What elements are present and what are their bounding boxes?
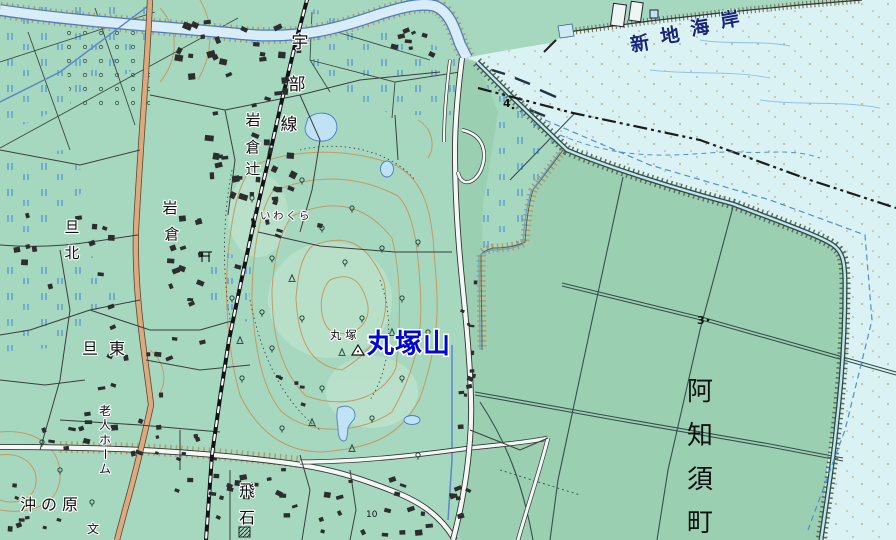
- building: [63, 446, 69, 450]
- building: [221, 156, 228, 160]
- label-ajisu-cho-1: 阿: [687, 377, 713, 407]
- building: [179, 215, 186, 221]
- building: [264, 139, 270, 145]
- building: [12, 483, 17, 487]
- building: [470, 369, 475, 373]
- label-ube-line-1: 宇: [292, 33, 309, 53]
- building: [399, 530, 405, 535]
- label-shinchi-kaigan-3: 海: [689, 15, 712, 41]
- building: [464, 393, 467, 396]
- building: [278, 51, 286, 58]
- label-ajisu-cho-2: 知: [687, 421, 713, 451]
- building: [421, 511, 426, 516]
- building: [409, 46, 413, 50]
- label-iwakura-1: 岩: [162, 199, 177, 217]
- harbor-inlet: [558, 24, 574, 38]
- spot-elevation-3: 3: [697, 314, 705, 327]
- building: [172, 337, 178, 341]
- building: [300, 385, 305, 388]
- label-rojin-home-4: ー: [98, 448, 112, 460]
- building: [458, 424, 464, 429]
- label-dan-kita-1: 旦: [64, 218, 79, 236]
- label-dan-kita-2: 北: [64, 244, 79, 262]
- label-iwakura-2: 倉: [164, 225, 179, 243]
- building: [348, 480, 353, 484]
- label-oki-no-hara: 沖の原: [20, 495, 83, 514]
- building: [156, 425, 161, 430]
- building: [181, 452, 186, 456]
- building: [97, 272, 104, 276]
- building: [474, 280, 478, 284]
- label-marutsukayama: 丸塚山: [366, 329, 451, 360]
- building: [281, 468, 286, 471]
- label-iwakura-tsuji-2: 倉: [245, 138, 260, 156]
- building: [193, 434, 198, 439]
- building: [187, 298, 193, 301]
- building: [8, 526, 13, 532]
- spot-elevation-10: 10: [366, 510, 378, 520]
- building: [272, 196, 279, 200]
- label-rojin-home-3: ホ: [99, 433, 111, 447]
- building: [274, 91, 282, 96]
- building: [286, 152, 294, 159]
- label-tobiishi-1: 飛: [239, 481, 255, 500]
- building: [205, 135, 214, 142]
- building: [198, 252, 204, 258]
- building: [188, 73, 196, 80]
- building: [167, 258, 175, 263]
- building: [253, 42, 260, 47]
- label-iwakura-station: いわくら: [260, 210, 312, 222]
- building: [458, 391, 464, 395]
- building: [294, 381, 298, 385]
- building: [25, 516, 30, 520]
- label-rojin-home-2: 人: [99, 418, 111, 432]
- building: [284, 513, 291, 517]
- label-ajisu-cho-4: 町: [687, 508, 713, 538]
- building: [425, 524, 433, 529]
- label-shinchi-kaigan-4: 岸: [719, 8, 742, 33]
- building: [210, 172, 215, 179]
- building: [324, 492, 331, 499]
- building: [146, 352, 150, 356]
- building: [154, 352, 161, 357]
- factory-icon: [239, 527, 250, 537]
- building: [13, 247, 20, 253]
- building: [187, 478, 193, 483]
- building: [85, 420, 92, 424]
- building: [19, 518, 25, 522]
- label-iwakura-tsuji-3: 辻: [245, 160, 260, 178]
- label-shinchi-kaigan-2: 地: [659, 23, 682, 49]
- building: [21, 259, 28, 265]
- building: [108, 235, 115, 241]
- label-ajisu-cho-3: 須: [687, 465, 713, 495]
- building: [382, 533, 389, 537]
- building: [200, 34, 205, 39]
- topographic-map-canvas[interactable]: 宇 部 線 岩 倉 辻 岩 倉 いわくら 旦 北 旦東 丸 塚 丸塚山 新 地 …: [0, 0, 896, 540]
- school-icon: 文: [87, 521, 99, 536]
- label-marutsuka-small: 丸 塚: [330, 328, 357, 342]
- building: [212, 152, 219, 160]
- label-rojin-home-5: ム: [99, 462, 111, 476]
- building: [415, 529, 423, 535]
- spot-elevation-4: 4: [503, 97, 511, 110]
- building: [159, 393, 163, 398]
- label-tobiishi-2: 石: [239, 508, 255, 527]
- label-dan-higashi: 旦東: [82, 339, 136, 358]
- building: [471, 351, 474, 356]
- label-ube-line-3: 線: [281, 115, 298, 135]
- building: [283, 88, 289, 95]
- label-rojin-home-1: 老: [99, 404, 111, 418]
- label-shinchi-kaigan-1: 新: [629, 31, 652, 57]
- orchard: [62, 25, 150, 115]
- building: [259, 57, 267, 62]
- label-ube-line-2: 部: [289, 75, 306, 95]
- building: [92, 224, 98, 230]
- building: [204, 20, 211, 25]
- building: [111, 425, 119, 431]
- label-iwakura-tsuji-1: 岩: [245, 111, 260, 129]
- building: [405, 39, 412, 43]
- building: [188, 53, 193, 58]
- building: [213, 474, 219, 479]
- building: [32, 246, 38, 252]
